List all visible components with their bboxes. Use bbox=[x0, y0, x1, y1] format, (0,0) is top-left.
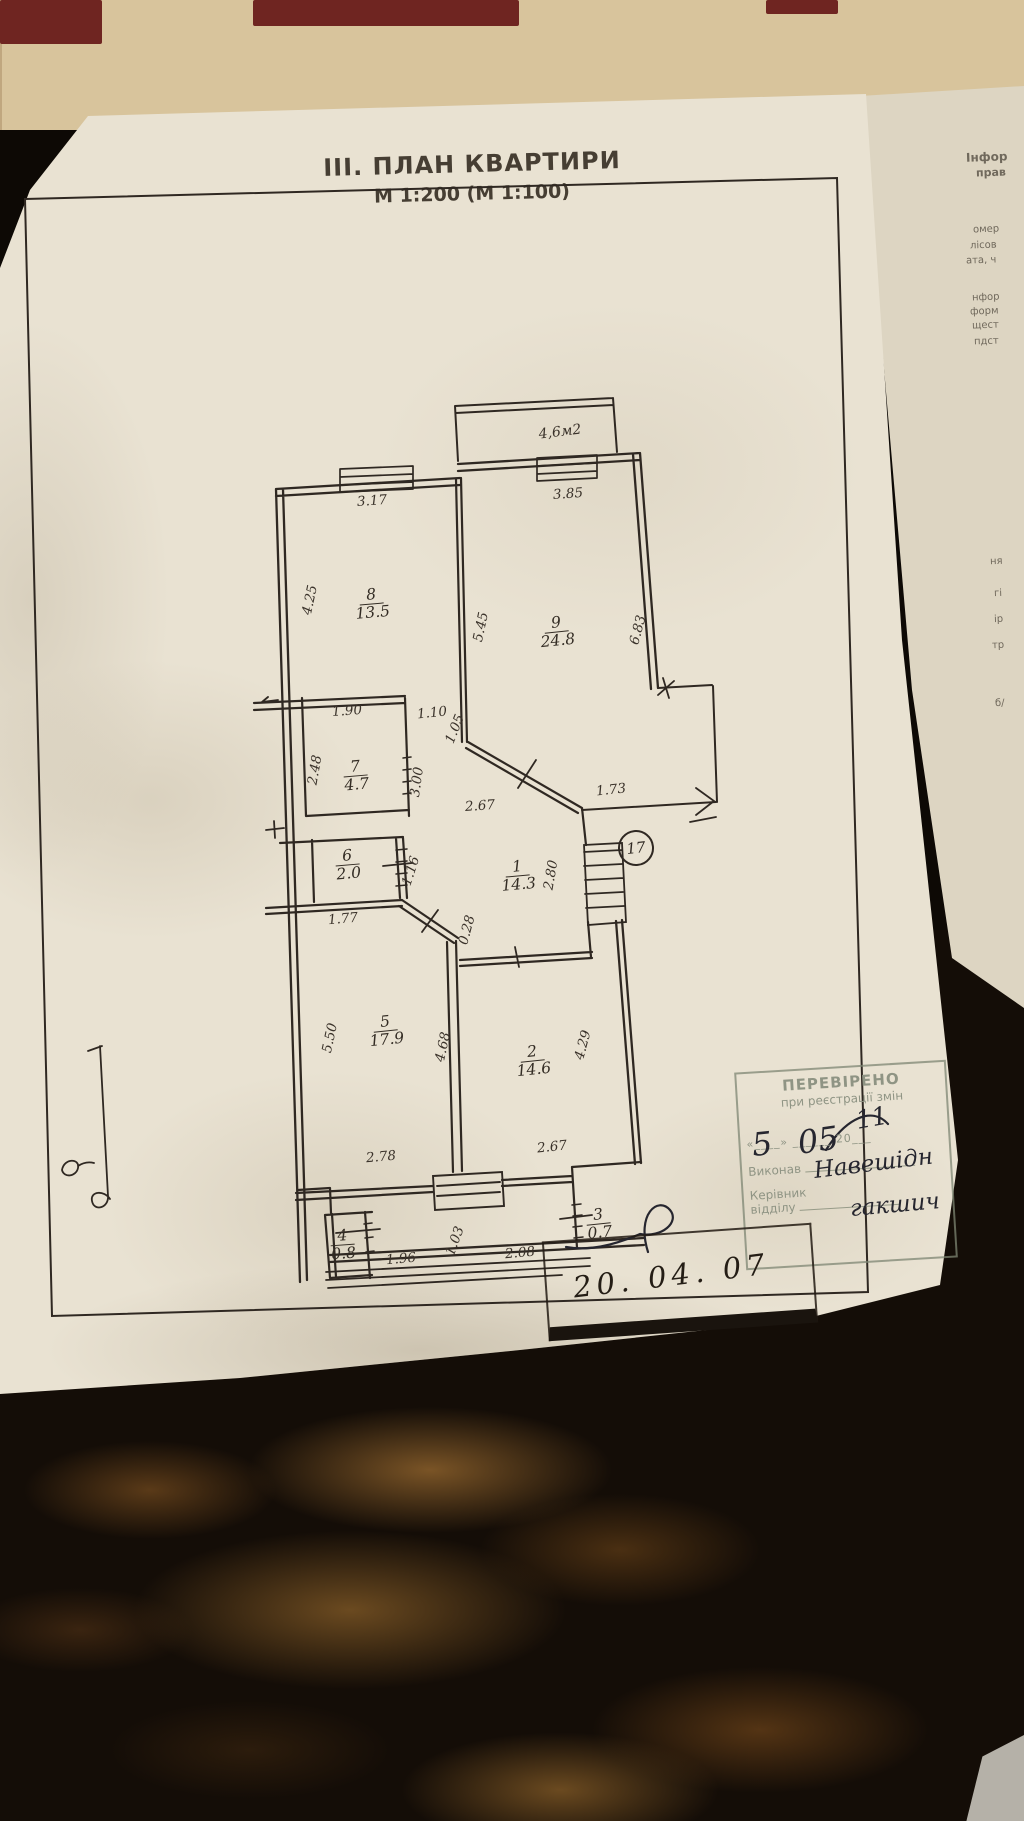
room-label: 74.7 bbox=[342, 757, 370, 794]
executor-label: Виконав bbox=[748, 1162, 802, 1179]
handwritten-entry: 11 bbox=[853, 1101, 889, 1135]
dimension-label: 1.73 bbox=[595, 780, 627, 799]
head-label-2: відділу bbox=[750, 1200, 796, 1217]
room-label: 924.8 bbox=[538, 613, 576, 652]
date-stamp: 20. 04. 07 bbox=[542, 1223, 818, 1342]
photo-of-floor-plan-document: { "document": { "title": "ІІІ. ПЛАН КВАР… bbox=[0, 0, 1024, 1821]
dimension-label: 3.17 bbox=[356, 492, 387, 510]
room-label: 114.3 bbox=[499, 857, 536, 895]
dimension-label: 1.77 bbox=[327, 910, 358, 929]
dimension-label: 2.67 bbox=[464, 797, 495, 815]
room-label: 813.5 bbox=[353, 585, 390, 623]
dimension-label: 1.90 bbox=[331, 702, 362, 720]
dimension-label: 3.85 bbox=[552, 485, 583, 503]
dimension-label: 2.08 bbox=[504, 1244, 535, 1263]
outer-walls bbox=[276, 453, 658, 1282]
bottom-window-unit bbox=[433, 1172, 504, 1210]
handwritten-entry: 5 bbox=[750, 1124, 774, 1164]
room-label: 40.8 bbox=[329, 1227, 356, 1264]
dimension-label: 1.10 bbox=[416, 703, 448, 722]
dimension-label: 1.96 bbox=[385, 1250, 416, 1269]
dimension-label: 2.67 bbox=[536, 1137, 568, 1156]
room-label: 517.9 bbox=[367, 1012, 405, 1051]
dimension-label: 2.78 bbox=[365, 1148, 396, 1167]
floor-plan-drawing bbox=[0, 0, 1024, 1821]
room-label: 62.0 bbox=[334, 846, 362, 883]
date-stamp-date: 20. 04. 07 bbox=[571, 1247, 771, 1305]
room-label: 214.6 bbox=[514, 1042, 552, 1081]
